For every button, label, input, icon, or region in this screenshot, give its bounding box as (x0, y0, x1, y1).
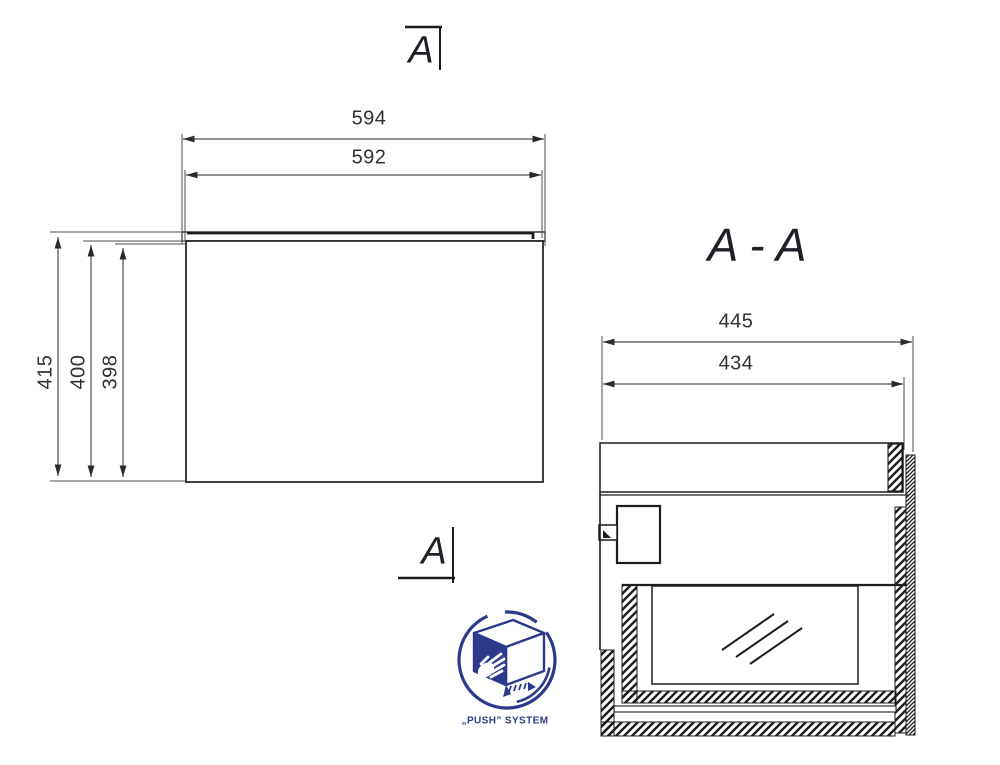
section-countertop (600, 443, 903, 492)
dim-label-width-cabinet: 592 (352, 147, 387, 170)
section-countertop-hatched-end (888, 444, 902, 491)
dim-label-height-total: 415 (35, 355, 58, 390)
drawer-side-face (652, 586, 858, 684)
dim-label-width-top: 594 (352, 108, 387, 131)
section-back-rail (906, 455, 915, 735)
dim-label-height-mid: 400 (68, 355, 91, 390)
dim-label-height-inner: 398 (100, 355, 123, 390)
drawing-svg (0, 0, 1000, 765)
push-system-label: „PUSH” SYSTEM (462, 716, 549, 727)
cut-marker-top-letter: A (408, 30, 433, 73)
section-view-dimensions (602, 336, 913, 452)
push-latch-housing (617, 506, 660, 563)
drawer-bottom-panel (622, 691, 896, 703)
section-title: A - A (708, 218, 807, 272)
cut-marker-bottom-letter: A (421, 531, 446, 574)
dim-label-depth-total: 445 (719, 311, 754, 334)
front-view (182, 232, 545, 482)
section-view (599, 443, 915, 736)
push-system-logo (440, 593, 574, 727)
section-side-panel (895, 507, 906, 733)
front-cabinet-body (186, 241, 543, 482)
drawer-front-panel (622, 585, 637, 703)
section-bottom-panel (601, 722, 895, 736)
technical-drawing-page: 594 592 415 400 398 A - A 445 434 A A „P… (0, 0, 1000, 765)
dim-label-depth-inner: 434 (719, 353, 754, 376)
drawer-runner (614, 706, 896, 712)
